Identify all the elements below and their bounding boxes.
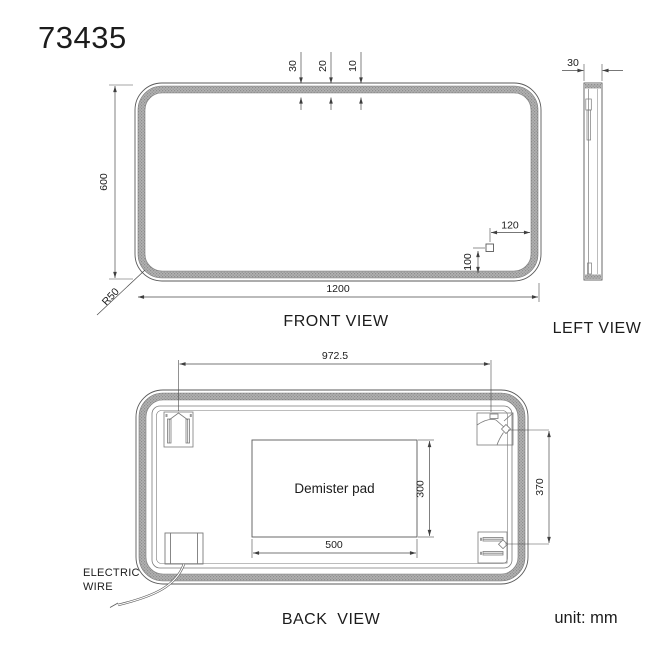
- back-view-label: BACK VIEW: [282, 611, 381, 628]
- front-dim-sensor-bottom: 100: [462, 248, 485, 273]
- front-view-label: FRONT VIEW: [283, 313, 389, 330]
- front-dim-width: 1200: [138, 283, 539, 302]
- bracket-bottom-right: [478, 532, 508, 563]
- junction-box: [165, 533, 203, 564]
- front-dim-10: 10: [347, 60, 359, 72]
- front-dim-120: 120: [501, 220, 519, 232]
- drawing-number: 73435: [38, 20, 127, 55]
- left-view: 30 LEFT VIEW: [553, 57, 642, 337]
- front-dim-sensor-right: 120: [490, 220, 530, 243]
- unit-note: unit: mm: [554, 609, 617, 627]
- back-dim-300: 300: [415, 480, 427, 498]
- electric-wire-label-2: WIRE: [83, 581, 113, 593]
- left-dim-30: 30: [567, 57, 579, 69]
- front-mirror-outline: [135, 83, 541, 281]
- electric-wire-label-1: ELECTRIC: [83, 567, 140, 579]
- drawing-sheet: 73435 30 20 10 600: [0, 0, 650, 650]
- left-top-cap: [585, 84, 601, 89]
- front-dim-30: 30: [287, 60, 299, 72]
- left-bottom-detail: [588, 263, 592, 274]
- front-dim-height: 600: [98, 85, 133, 279]
- demister-pad-label: Demister pad: [294, 481, 374, 496]
- front-dim-1200: 1200: [326, 283, 350, 295]
- front-dim-600: 600: [98, 173, 110, 191]
- front-dim-r50: R50: [100, 286, 122, 308]
- front-band-inner-edge: [145, 93, 531, 271]
- touch-sensor: [486, 244, 494, 252]
- front-band-outer-edge: [138, 86, 538, 278]
- back-dim-370: 370: [534, 478, 546, 496]
- left-view-label: LEFT VIEW: [553, 320, 642, 337]
- front-dim-100: 100: [462, 253, 474, 271]
- left-bottom-cap: [585, 275, 601, 280]
- front-dim-20: 20: [317, 60, 329, 72]
- back-dim-972: 972.5: [322, 350, 348, 362]
- bracket-top-left: [164, 412, 193, 447]
- back-dim-bracket-span: 972.5: [179, 350, 492, 412]
- front-dim-top-offsets: 30 20 10: [287, 52, 361, 110]
- front-led-band: [142, 90, 535, 275]
- back-view: ELECTRIC WIRE Demister pad 972.5 370 300: [83, 350, 549, 628]
- left-dim-thickness: 30: [562, 57, 623, 81]
- front-view: 30 20 10 600 1200 R50 120: [97, 52, 541, 330]
- back-dim-pad-width: 500: [252, 539, 417, 558]
- back-dim-500: 500: [325, 539, 343, 551]
- front-dim-radius: R50: [97, 270, 145, 315]
- technical-drawing: 73435 30 20 10 600: [0, 0, 650, 650]
